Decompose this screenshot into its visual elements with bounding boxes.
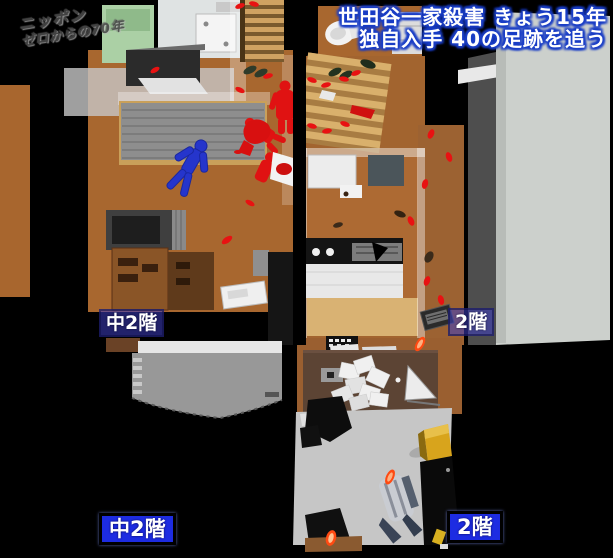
small-white-box — [340, 185, 362, 198]
fridge — [308, 155, 356, 188]
left-floor-strip — [0, 85, 30, 297]
wooden-chest — [112, 248, 214, 310]
floor-label-mid2f-upper: 中2階 — [99, 309, 164, 337]
kitchen-stove — [306, 238, 403, 298]
light-wood-floor — [307, 298, 418, 336]
dividing-wall — [293, 0, 306, 345]
tv-set — [106, 210, 186, 250]
white-counter — [138, 78, 208, 94]
staircase-upper — [240, 0, 284, 62]
staircase-lower — [296, 52, 392, 153]
floor-label-mid2f-lower: 中2階 — [99, 513, 176, 545]
headline-line2: 独自入手 40の足跡を追う — [338, 28, 607, 50]
study-room — [293, 335, 462, 552]
gray-box — [253, 250, 269, 276]
headline-line1: 世田谷一家殺害 きょう15年 — [338, 6, 607, 28]
floor-label-2f-lower: 2階 — [447, 511, 503, 543]
news-headline: 世田谷一家殺害 きょう15年 独自入手 40の足跡を追う — [338, 6, 607, 50]
gray-wall-panel — [458, 12, 610, 345]
tv-broadcast-frame: ニッポン ゼロからの70年 世田谷一家殺害 きょう15年 独自入手 40の足跡を… — [0, 0, 613, 558]
floorplan-3d-scene — [0, 0, 613, 558]
floor-label-2f-upper: 2階 — [448, 308, 494, 336]
dark-counter — [368, 155, 404, 186]
